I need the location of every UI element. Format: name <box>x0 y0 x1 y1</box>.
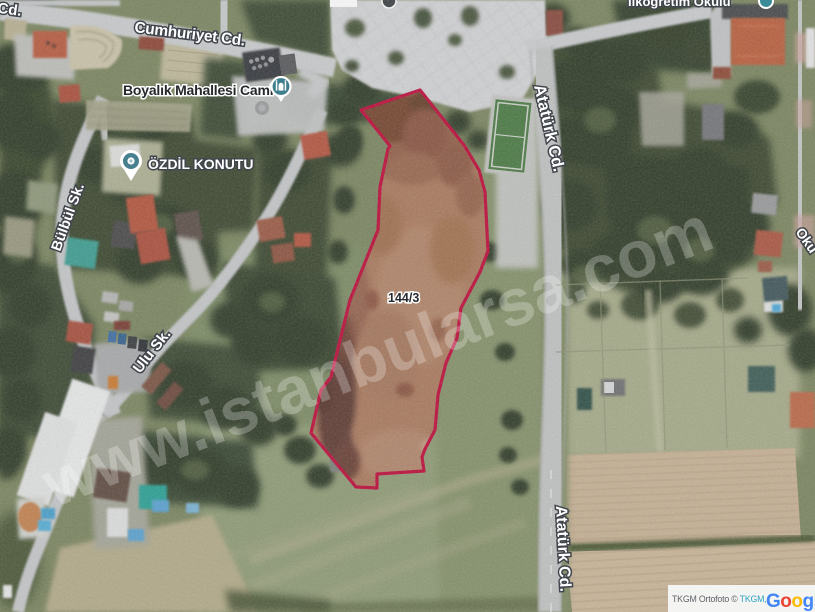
svg-text:ÖZDİL KONUTU: ÖZDİL KONUTU <box>148 156 254 172</box>
svg-text:İlköğretim Okulu: İlköğretim Okulu <box>628 0 731 9</box>
svg-text:Googl: Googl <box>766 591 815 612</box>
svg-text:Boyalık Mahallesi Cami: Boyalık Mahallesi Cami <box>123 82 273 98</box>
svg-text:Cd.: Cd. <box>0 0 23 20</box>
svg-text:TKGM Ortofoto © TKGM,: TKGM Ortofoto © TKGM, <box>672 594 767 604</box>
